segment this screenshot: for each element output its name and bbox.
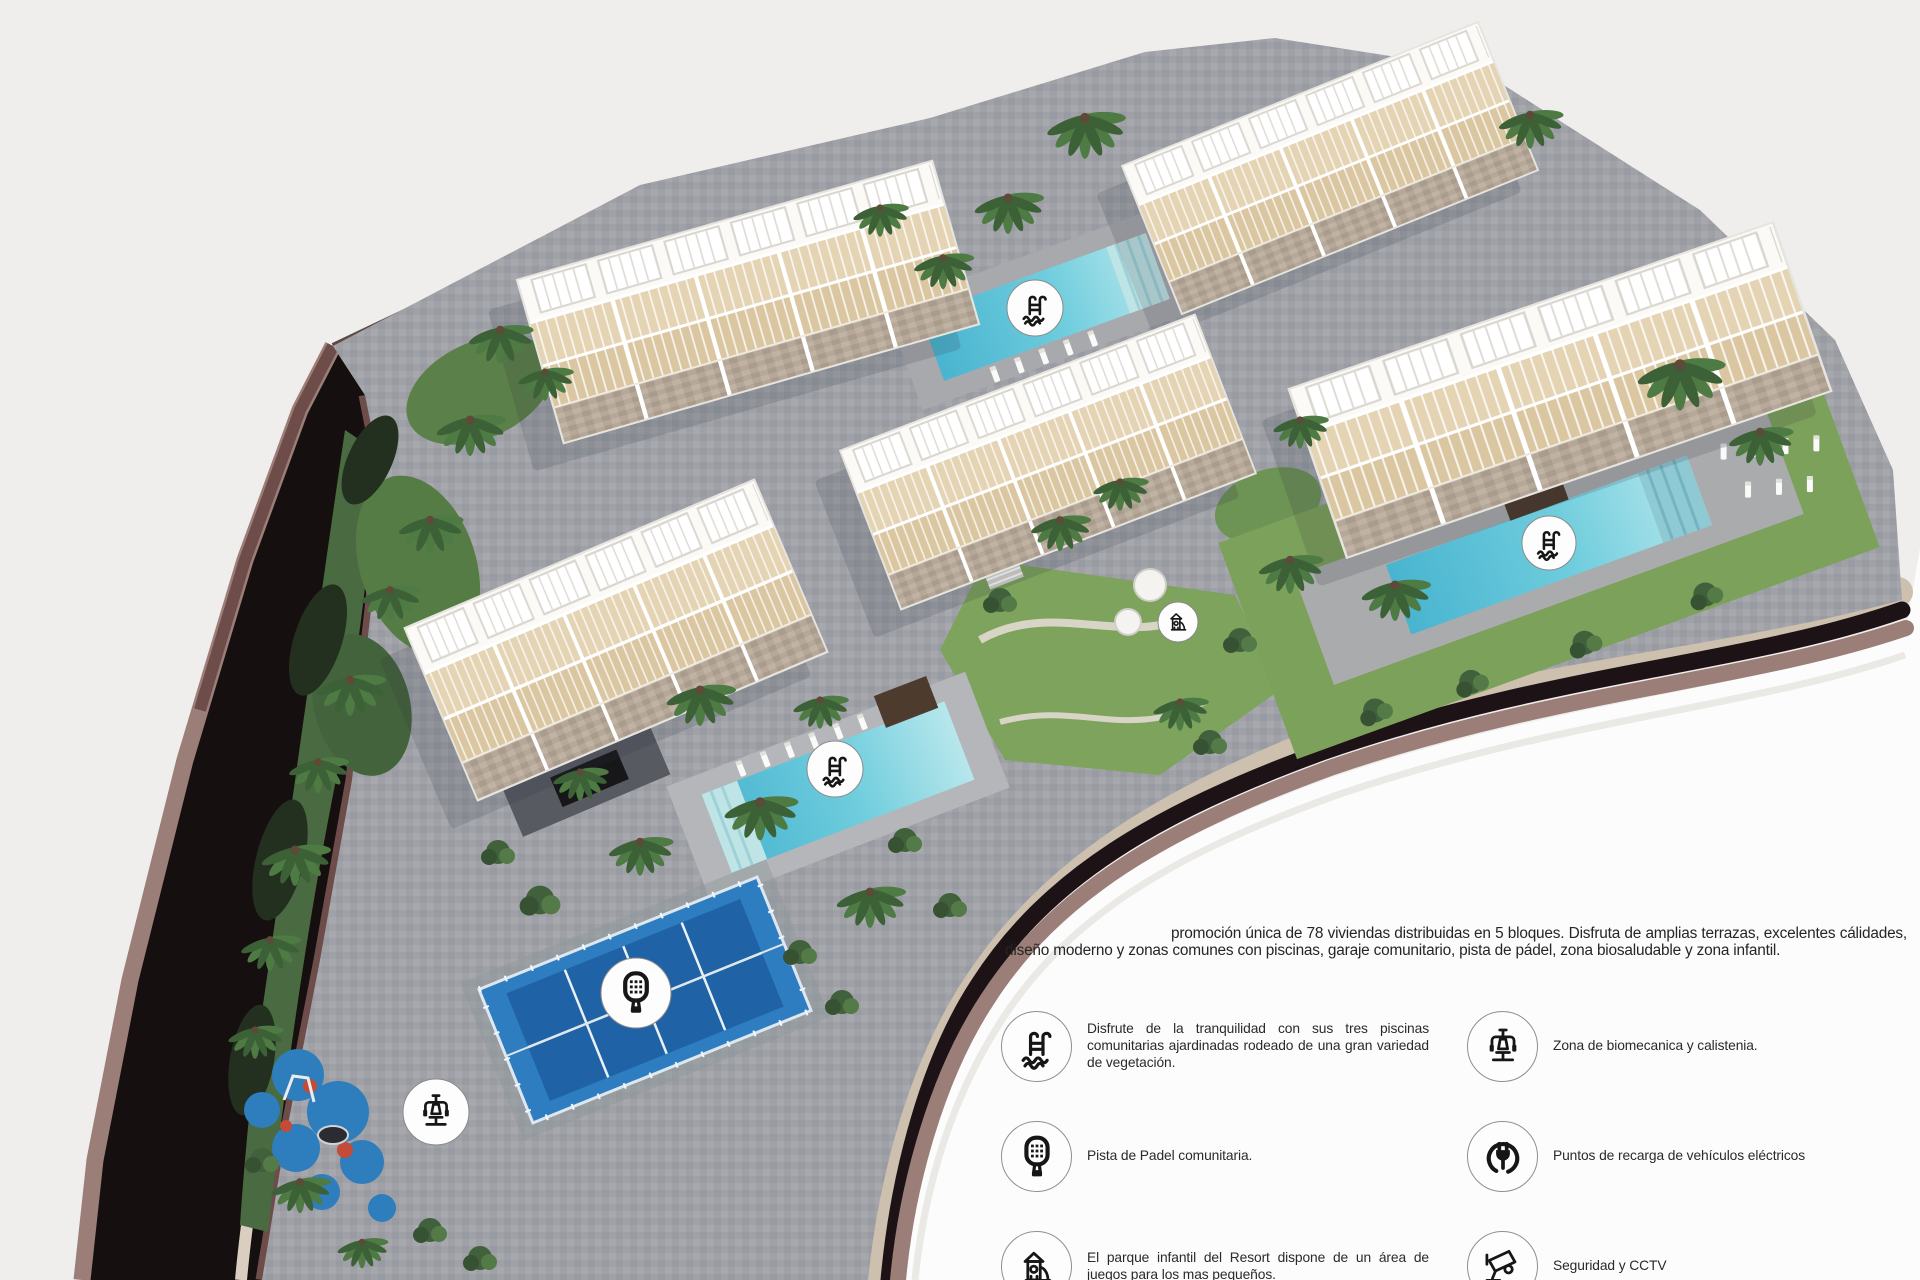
legend-text: Pista de Padel comunitaria. bbox=[1087, 1148, 1429, 1165]
pool-icon bbox=[1001, 1011, 1072, 1082]
biohealthy-zone-marker bbox=[403, 1079, 469, 1145]
legend-item-playground: El parque infantil del Resort dispone de… bbox=[1001, 1231, 1429, 1280]
legend-text: Puntos de recarga de vehículos eléctrico… bbox=[1553, 1148, 1920, 1165]
legend-text: Disfrute de la tranquilidad con sus tres… bbox=[1087, 1021, 1429, 1071]
legend-text: El parque infantil del Resort dispone de… bbox=[1087, 1250, 1429, 1280]
legend-item-cctv: Seguridad y CCTV bbox=[1467, 1231, 1920, 1280]
intro-paragraph: promoción única de 78 viviendas distribu… bbox=[1005, 926, 1907, 959]
cctv-icon bbox=[1467, 1231, 1538, 1280]
padel-court-marker bbox=[601, 958, 671, 1028]
pool-marker-central bbox=[807, 741, 863, 797]
legend-item-ev-charging: Puntos de recarga de vehículos eléctrico… bbox=[1467, 1121, 1920, 1192]
pool-marker-north bbox=[1007, 280, 1063, 336]
padel-icon bbox=[1001, 1121, 1072, 1192]
playground-icon bbox=[1001, 1231, 1072, 1280]
brochure-page: promoción única de 78 viviendas distribu… bbox=[0, 0, 1920, 1280]
legend-item-gym: Zona de biomecanica y calistenia. bbox=[1467, 1011, 1920, 1082]
site-plan-render bbox=[0, 0, 1920, 1280]
legend-text: Seguridad y CCTV bbox=[1553, 1258, 1920, 1275]
pool-marker-east bbox=[1522, 516, 1576, 570]
legend-item-padel: Pista de Padel comunitaria. bbox=[1001, 1121, 1429, 1192]
gym-icon bbox=[1467, 1011, 1538, 1082]
legend-item-pools: Disfrute de la tranquilidad con sus tres… bbox=[1001, 1011, 1429, 1082]
legend-text: Zona de biomecanica y calistenia. bbox=[1553, 1038, 1920, 1055]
ev-plug-icon bbox=[1467, 1121, 1538, 1192]
garden-playground-marker bbox=[1158, 602, 1198, 642]
